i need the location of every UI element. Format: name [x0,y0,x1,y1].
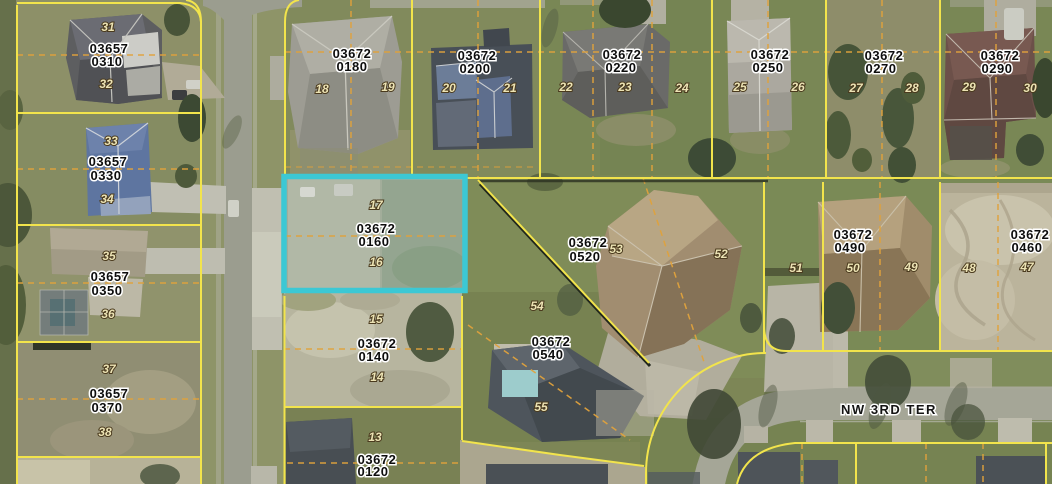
svg-text:21: 21 [502,81,517,95]
svg-text:03657: 03657 [90,386,129,401]
svg-text:15: 15 [369,312,383,326]
svg-text:48: 48 [961,261,976,275]
svg-text:20: 20 [441,81,456,95]
svg-text:27: 27 [848,81,864,95]
svg-text:16: 16 [369,255,383,269]
svg-text:0140: 0140 [359,349,390,364]
svg-text:33: 33 [104,134,118,148]
svg-text:0250: 0250 [753,60,784,75]
svg-text:52: 52 [714,247,728,261]
svg-text:14: 14 [370,370,384,384]
svg-text:0270: 0270 [866,61,897,76]
svg-text:0490: 0490 [835,240,866,255]
svg-text:19: 19 [381,80,395,94]
svg-text:50: 50 [846,261,860,275]
svg-text:NW 3RD TER: NW 3RD TER [841,402,937,417]
svg-text:54: 54 [530,299,544,313]
svg-text:51: 51 [789,261,803,275]
svg-text:0310: 0310 [92,54,123,69]
svg-text:26: 26 [790,80,805,94]
svg-text:0220: 0220 [606,60,637,75]
svg-text:0330: 0330 [91,168,122,183]
svg-text:0120: 0120 [358,464,389,479]
svg-text:0370: 0370 [92,400,123,415]
svg-text:18: 18 [315,82,329,96]
svg-text:23: 23 [617,80,632,94]
svg-text:03672: 03672 [569,235,608,250]
svg-text:0540: 0540 [533,347,564,362]
svg-text:35: 35 [102,249,116,263]
svg-text:03657: 03657 [89,154,128,169]
svg-text:0460: 0460 [1012,240,1043,255]
svg-text:24: 24 [674,81,689,95]
svg-text:37: 37 [102,362,117,376]
svg-text:0180: 0180 [337,59,368,74]
svg-text:0160: 0160 [359,234,390,249]
svg-text:38: 38 [98,425,112,439]
svg-text:36: 36 [101,307,115,321]
svg-text:25: 25 [732,80,747,94]
svg-text:0520: 0520 [570,249,601,264]
svg-text:55: 55 [534,400,548,414]
svg-text:0200: 0200 [460,61,491,76]
svg-text:13: 13 [368,430,382,444]
svg-text:03657: 03657 [91,269,130,284]
svg-text:31: 31 [101,20,115,34]
svg-text:29: 29 [961,80,976,94]
svg-text:17: 17 [369,198,384,212]
svg-text:49: 49 [903,260,918,274]
svg-text:32: 32 [99,77,113,91]
svg-text:22: 22 [558,80,573,94]
svg-text:0290: 0290 [982,61,1013,76]
svg-text:30: 30 [1023,81,1037,95]
svg-text:28: 28 [904,81,919,95]
svg-text:34: 34 [100,192,114,206]
svg-text:53: 53 [609,242,623,256]
svg-text:0350: 0350 [92,283,123,298]
svg-text:47: 47 [1019,260,1035,274]
